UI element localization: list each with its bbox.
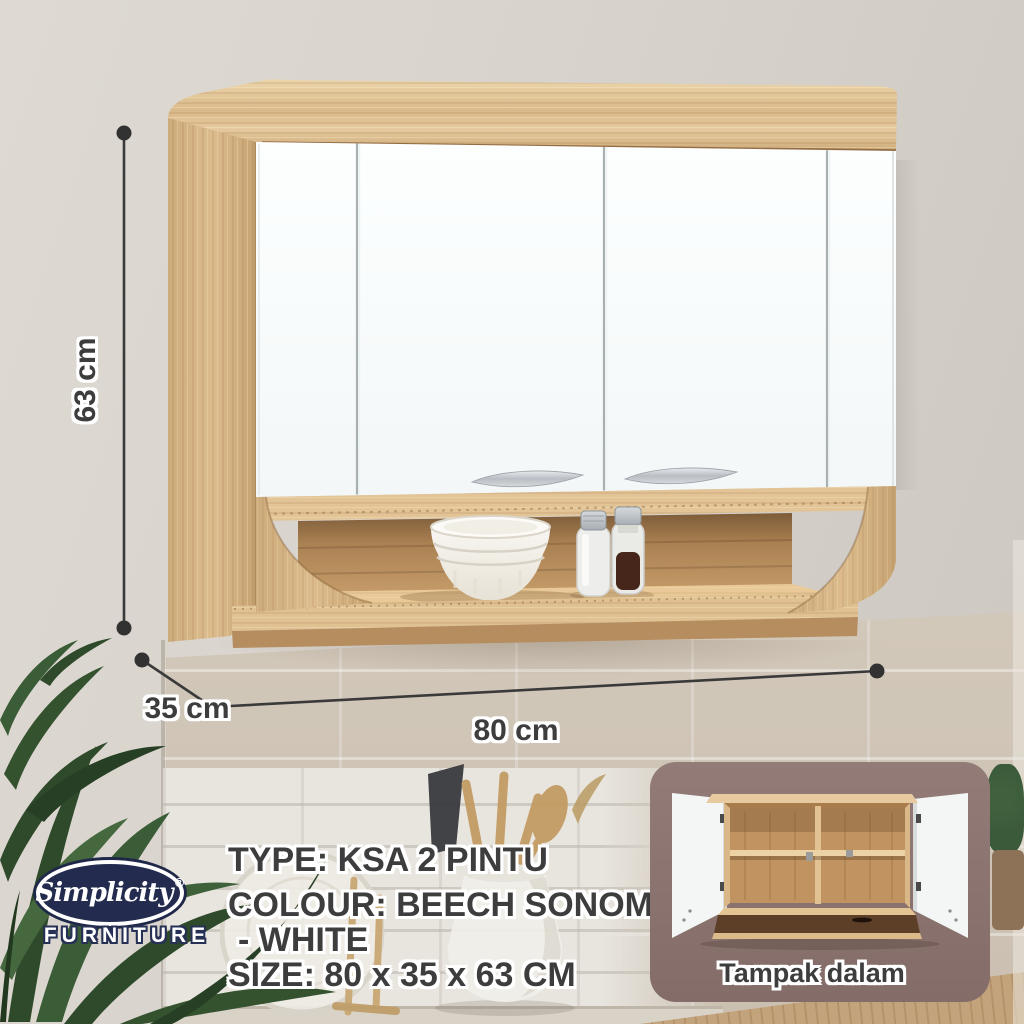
small-plant xyxy=(986,764,1024,852)
brand-name: Simplicity® xyxy=(36,877,185,909)
inside-view-caption: Tampak dalam xyxy=(650,958,974,989)
inside-bottom-shelf xyxy=(712,908,922,939)
shelf-handle-slot xyxy=(852,918,872,923)
inside-view-panel: Tampak dalam xyxy=(650,762,990,1002)
inside-cabinet-shadow xyxy=(700,938,940,950)
brand-logo-oval: Simplicity® xyxy=(36,860,184,926)
product-image: 63 cm 35 cm 80 cm Simplicity® FURNITURE … xyxy=(0,0,1024,1024)
inside-carcass xyxy=(706,794,918,908)
product-type-text: TYPE: KSA 2 PINTU xyxy=(228,841,548,880)
brand-tagline: FURNITURE xyxy=(34,924,220,948)
inside-door-right xyxy=(913,793,968,938)
product-size-text: SIZE: 80 x 35 x 63 CM xyxy=(228,956,576,995)
width-dimension-label: 80 cm xyxy=(473,714,558,748)
width-dimension-line xyxy=(212,671,877,707)
plant-pot xyxy=(992,850,1024,930)
brand-name-text: Simplicity xyxy=(36,878,173,908)
product-colour-text: COLOUR: BEECH SONOMA xyxy=(228,886,678,925)
height-dimension-label: 63 cm xyxy=(69,337,103,422)
depth-dimension-label: 35 cm xyxy=(144,692,229,726)
shelf-hardware xyxy=(846,850,853,857)
registered-mark-icon: ® xyxy=(173,876,184,890)
product-colour-text-2: - WHITE xyxy=(238,921,368,960)
shelf-hardware xyxy=(806,852,813,861)
brand-logo: Simplicity® FURNITURE xyxy=(34,856,220,952)
